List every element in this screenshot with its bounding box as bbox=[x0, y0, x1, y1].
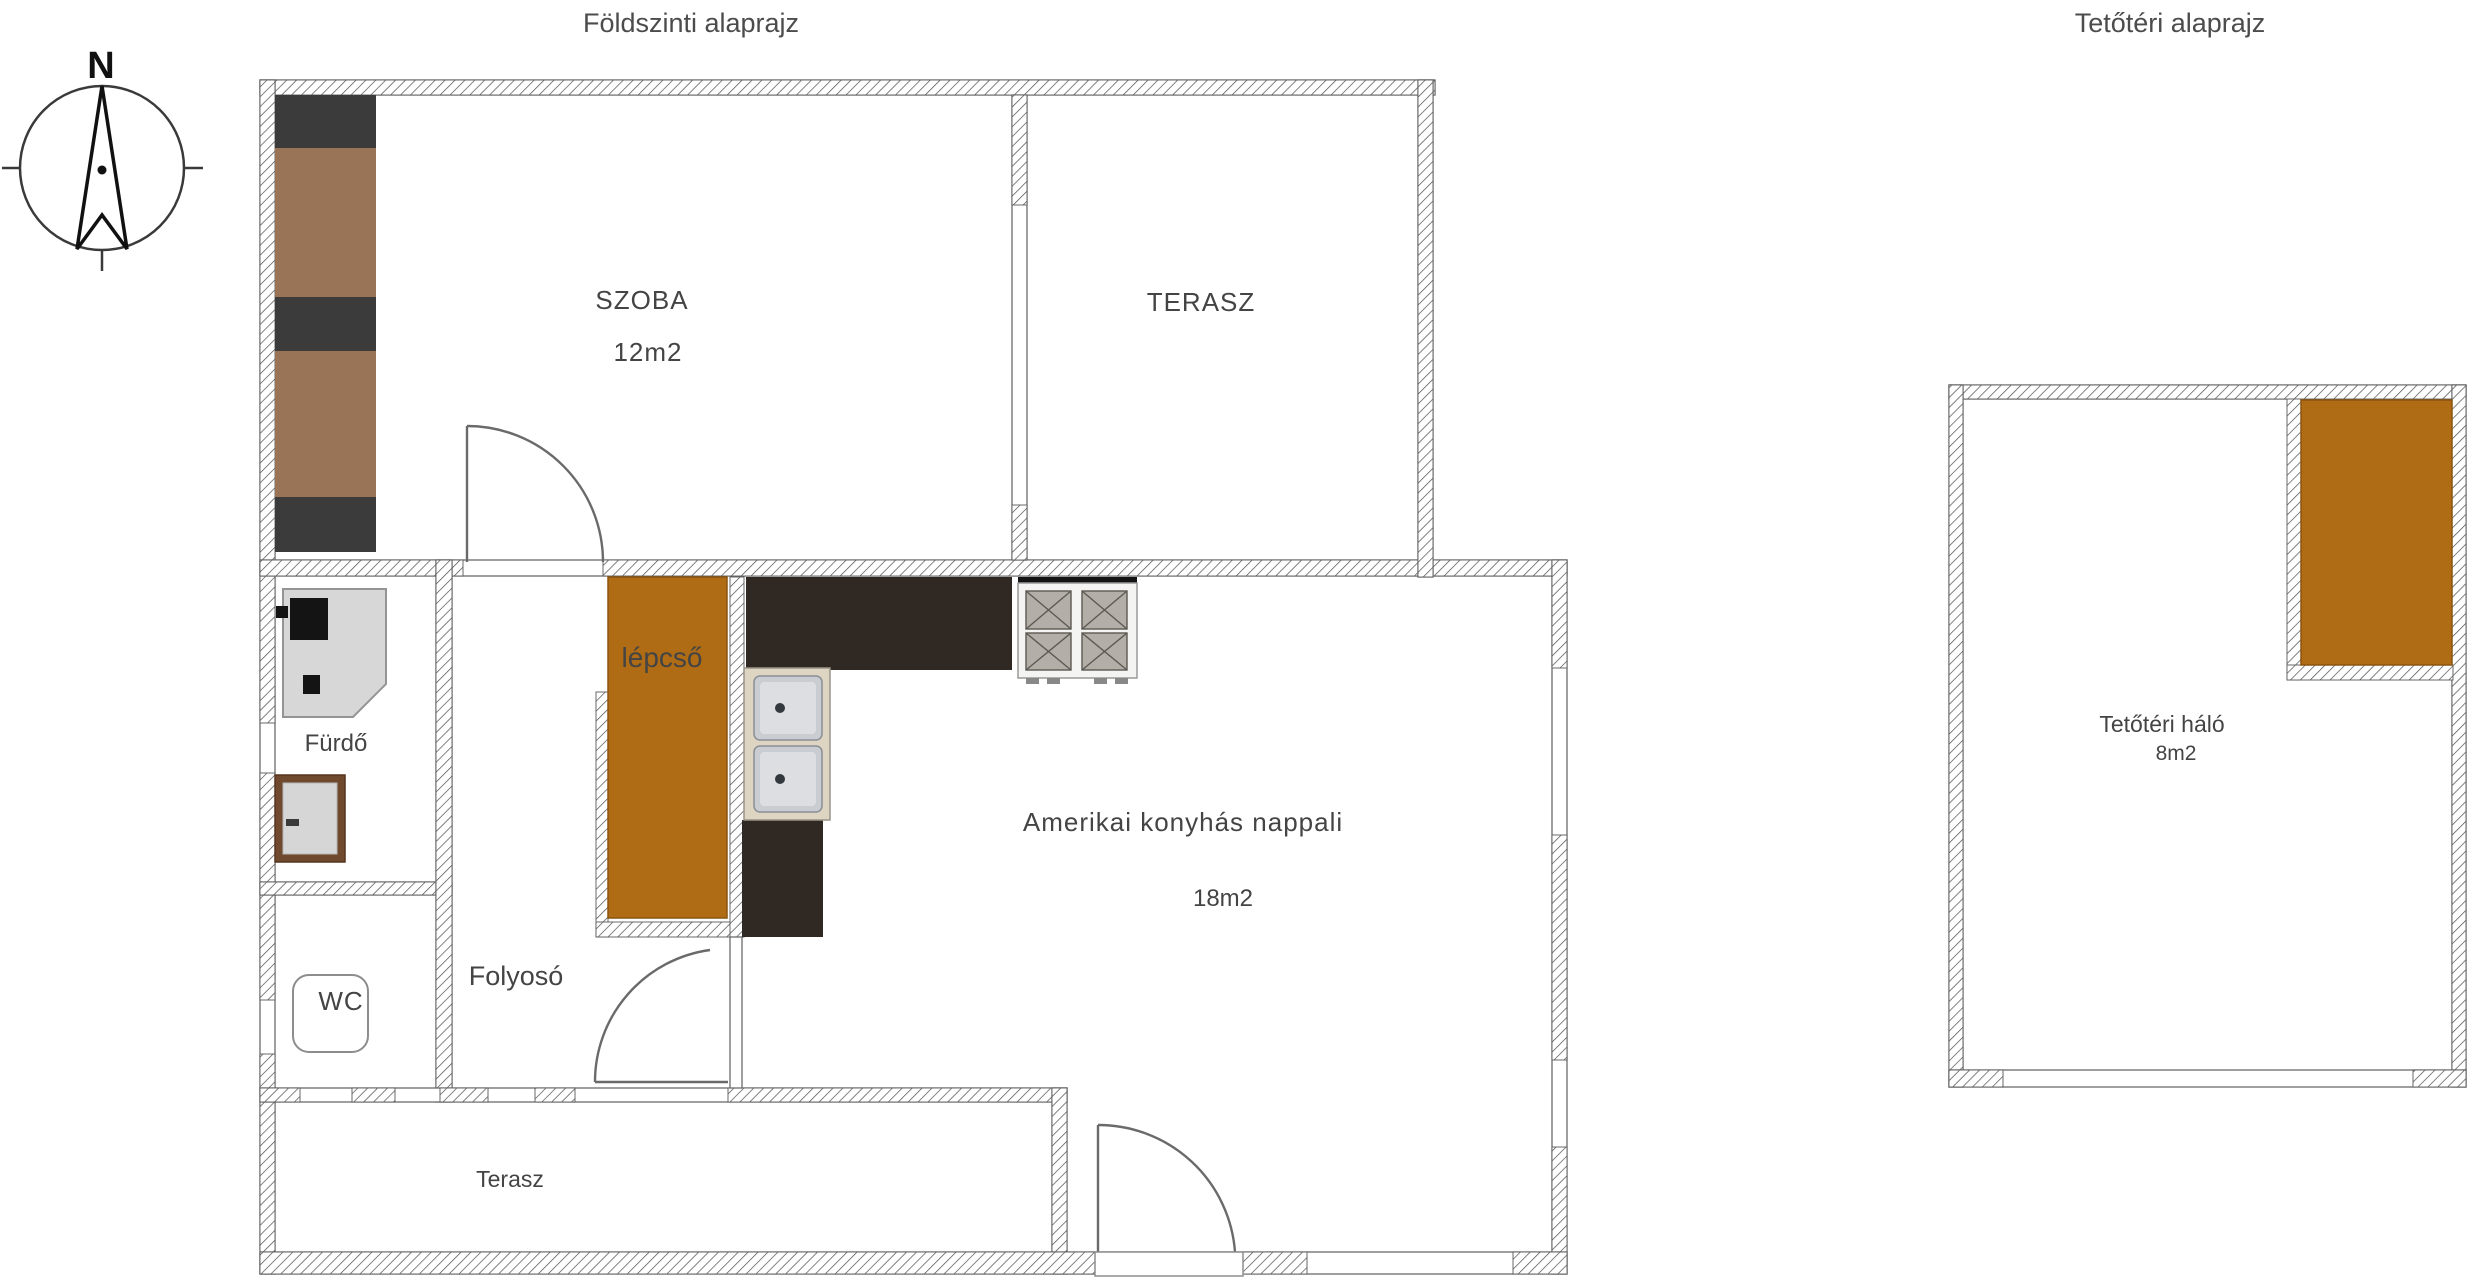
kitchen-sink bbox=[744, 668, 830, 820]
terasz-top-label: TERASZ bbox=[1147, 287, 1256, 317]
attic-wall-bottom-hatch-1 bbox=[1949, 1070, 2003, 1087]
wall-terrace-top-hatch-2 bbox=[352, 1088, 395, 1102]
attic-wall-right-hatch bbox=[2452, 385, 2466, 1087]
kitchen-counter-side bbox=[742, 820, 823, 937]
shower bbox=[276, 589, 386, 717]
hallway-label: Folyosó bbox=[469, 961, 564, 991]
attic-wall-top-hatch bbox=[1949, 385, 2466, 399]
wall-terrace-top-hatch-4 bbox=[535, 1088, 575, 1102]
floor-plan-document: Földszinti alaprajz Tetőtéri alaprajz N bbox=[0, 0, 2469, 1280]
wardrobe-wood-band-2 bbox=[275, 351, 376, 497]
szoba-wardrobe bbox=[275, 95, 376, 552]
wall-stairs-right bbox=[730, 577, 744, 937]
kitchen-counter-top bbox=[746, 577, 1012, 670]
wall-terasz-right-hatch bbox=[1418, 80, 1433, 577]
stove-feet bbox=[1026, 678, 1128, 684]
attic-bedroom-label: Tetőtéri háló bbox=[2099, 711, 2224, 737]
washbasin-tap bbox=[286, 819, 299, 826]
ground-floor-title: Földszinti alaprajz bbox=[583, 8, 799, 38]
living-terrace-door bbox=[1095, 1125, 1243, 1276]
wall-living-right-hatch-2 bbox=[1552, 835, 1567, 1060]
wall-stairs-left bbox=[596, 692, 608, 937]
attic-wall-left-hatch bbox=[1949, 385, 1963, 1087]
wardrobe-dark-band-3 bbox=[275, 497, 376, 552]
attic-stairwell-wall-bottom bbox=[2287, 665, 2453, 680]
wc-label: WC bbox=[318, 986, 363, 1016]
wall-bottom-hatch-2 bbox=[1243, 1252, 1307, 1274]
shower-drain bbox=[303, 675, 320, 694]
sink-drain-1 bbox=[775, 703, 785, 713]
sink-drain-2 bbox=[775, 774, 785, 784]
sink-basin-1-inner bbox=[760, 682, 816, 734]
wall-stairs-bottom bbox=[596, 922, 744, 937]
living-area: 18m2 bbox=[1193, 885, 1253, 912]
wall-bathroom-right-hatch bbox=[436, 560, 452, 1102]
attic-stairwell-wall-left bbox=[2287, 399, 2301, 680]
wall-szoba-terasz-hatch-2 bbox=[1012, 505, 1027, 560]
stove bbox=[1018, 577, 1137, 684]
wall-left-hatch-1 bbox=[260, 80, 275, 723]
partition-hallway-living bbox=[730, 937, 742, 1088]
wardrobe-dark-band-2 bbox=[275, 297, 376, 351]
szoba-label: SZOBA bbox=[595, 285, 688, 315]
terrace-bottom-label: Terasz bbox=[476, 1166, 544, 1192]
hallway-terrace-door bbox=[595, 950, 728, 1082]
wall-bottom-hatch-3 bbox=[1513, 1252, 1567, 1274]
bathroom-label: Fürdő bbox=[305, 730, 368, 757]
wall-bottom-hatch-1 bbox=[260, 1252, 1095, 1274]
ground-stairs bbox=[608, 577, 727, 918]
compass-north-label: N bbox=[87, 45, 114, 87]
washbasin-bowl bbox=[283, 783, 337, 854]
attic-bedroom-area: 8m2 bbox=[2156, 742, 2197, 765]
doors bbox=[467, 426, 1243, 1276]
wall-mid-hatch-1 bbox=[260, 560, 463, 576]
compass-rose: N bbox=[2, 45, 203, 271]
szoba-door bbox=[467, 426, 603, 562]
attic-stairwell bbox=[2301, 400, 2452, 665]
wall-terrace-top-hatch-5 bbox=[728, 1088, 1067, 1102]
wall-szoba-terasz-hatch-1 bbox=[1012, 95, 1027, 205]
wall-terrace-right-hatch bbox=[1052, 1088, 1067, 1274]
wall-left-hatch-3 bbox=[260, 1054, 275, 1274]
attic-wall-bottom-hatch-2 bbox=[2413, 1070, 2466, 1087]
door-threshold bbox=[1095, 1252, 1243, 1276]
wall-top-hatch bbox=[260, 80, 1435, 95]
wall-living-right-hatch-1 bbox=[1552, 560, 1567, 668]
szoba-area: 12m2 bbox=[613, 337, 682, 367]
shower-head bbox=[290, 598, 328, 640]
floor-plan-canvas: Földszinti alaprajz Tetőtéri alaprajz N bbox=[0, 0, 2469, 1280]
wall-bathroom-bottom-hatch bbox=[260, 882, 452, 895]
compass-center-dot bbox=[98, 166, 107, 175]
washbasin bbox=[275, 775, 345, 862]
wall-terrace-top-hatch-3 bbox=[440, 1088, 488, 1102]
attic-wall-bottom bbox=[1949, 1070, 2466, 1087]
living-label: Amerikai konyhás nappali bbox=[1023, 807, 1343, 837]
wardrobe-wood-band-1 bbox=[275, 148, 376, 297]
attic-title: Tetőtéri alaprajz bbox=[2075, 8, 2266, 38]
sink-basin-2-inner bbox=[760, 752, 816, 806]
wall-terrace-top-hatch-1 bbox=[260, 1088, 300, 1102]
stairs-label: lépcső bbox=[622, 642, 703, 673]
ground-floor-walls bbox=[260, 80, 1567, 1274]
wardrobe-dark-band-1 bbox=[275, 95, 376, 148]
shower-pipe bbox=[276, 606, 288, 618]
